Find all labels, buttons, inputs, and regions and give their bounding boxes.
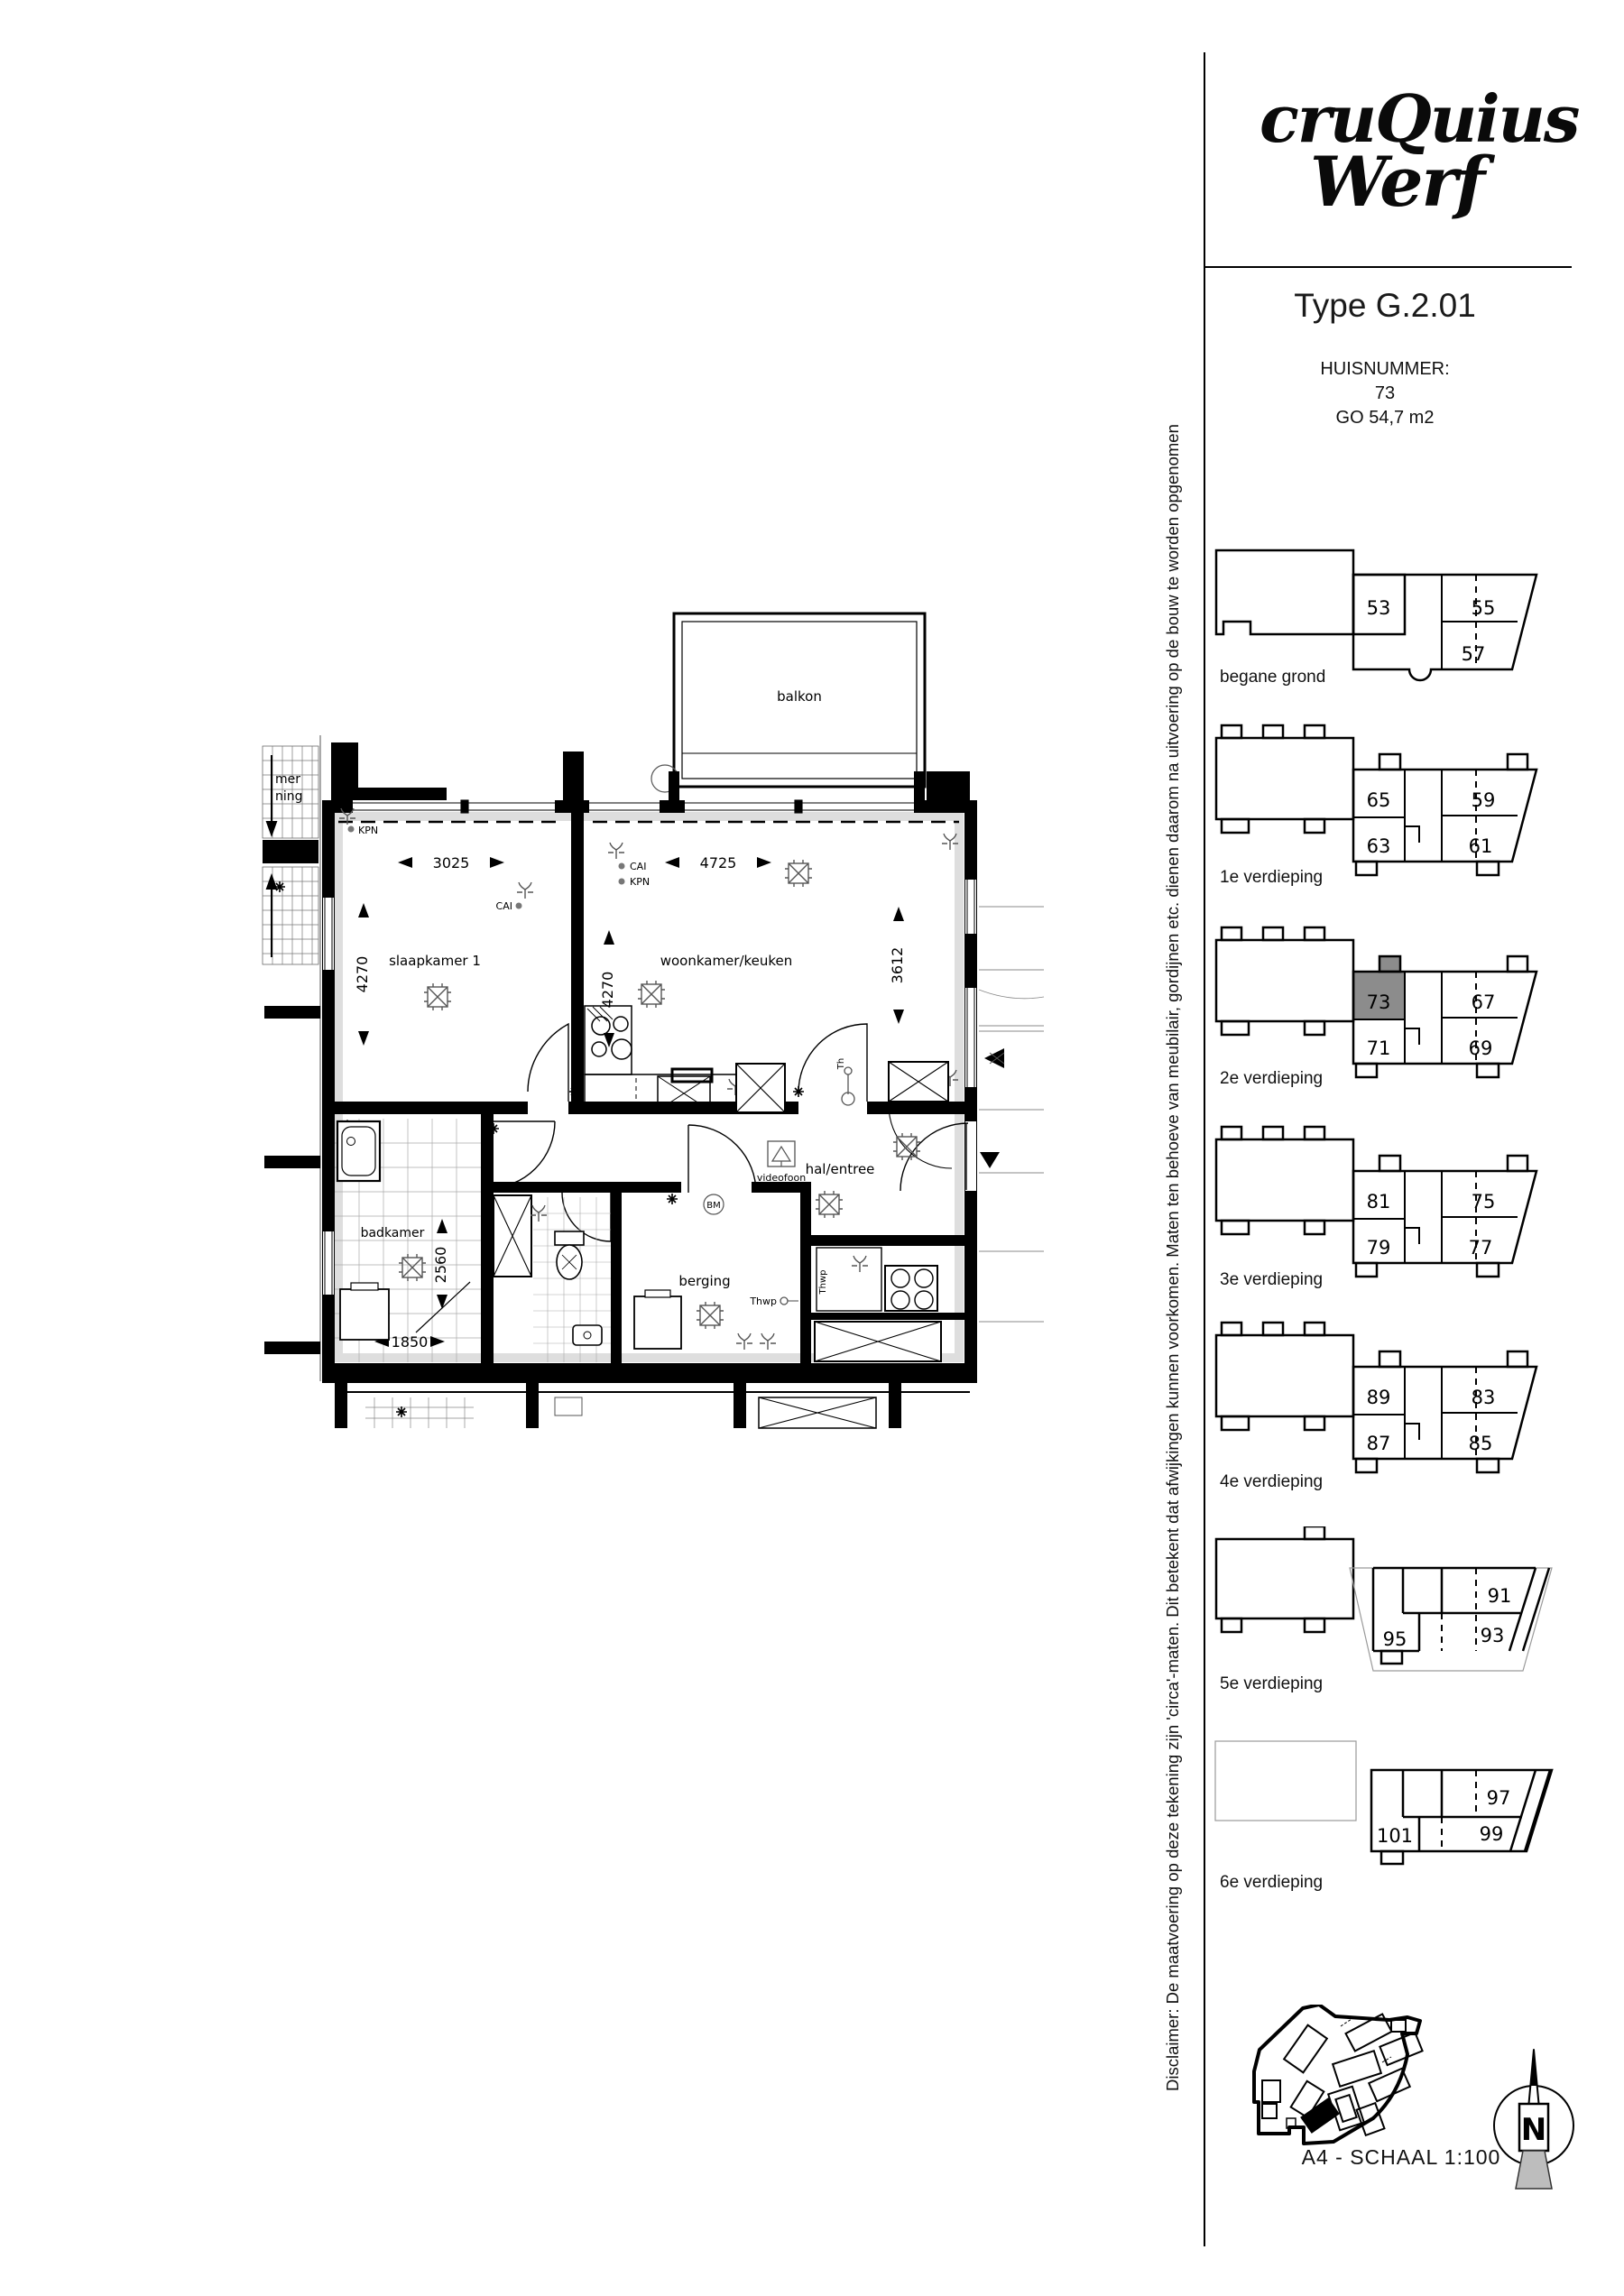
north-letter: N [1521, 2112, 1546, 2148]
hand-basin [573, 1325, 602, 1345]
interior-walls [328, 813, 970, 1363]
level-diagram-3e: 81 79 75 77 [1209, 1121, 1624, 1282]
logo-werf: Werf [1310, 148, 1483, 217]
unit-number: 69 [1469, 1037, 1493, 1059]
neighbor-label-cut: mer [275, 772, 300, 787]
svg-text:4270: 4270 [354, 956, 371, 993]
svg-text:CAI: CAI [630, 861, 646, 872]
shaft-bottom-right [815, 1322, 941, 1361]
unit-number: 77 [1469, 1237, 1493, 1259]
neighbor-wall-stub [264, 1342, 320, 1354]
svg-text:2560: 2560 [432, 1247, 449, 1284]
room-label-slaapkamer: slaapkamer 1 [389, 953, 481, 969]
unit-number: 81 [1367, 1191, 1391, 1213]
thermostat: Th [836, 1058, 854, 1105]
level-label: 1e verdieping [1220, 868, 1323, 888]
svg-text:BM: BM [706, 1201, 721, 1211]
unit-number: 95 [1383, 1628, 1407, 1650]
unit-number: 91 [1488, 1585, 1512, 1607]
room-label-badkamer: badkamer [361, 1226, 425, 1240]
entrance-arrow-down [980, 1152, 1000, 1168]
level-label: 2e verdieping [1220, 1069, 1323, 1089]
unit-number: 79 [1367, 1237, 1391, 1259]
videofoon: videofoon [757, 1141, 806, 1184]
highlighted-unit-balcony [1379, 956, 1400, 972]
unit-number: 83 [1472, 1387, 1496, 1408]
unit-number: 67 [1472, 991, 1496, 1013]
toilet [555, 1231, 584, 1279]
go-area-value: GO 54,7 m2 [1204, 408, 1565, 429]
room-label-berging: berging [678, 1273, 730, 1289]
level-diagram-2e-current: 73 71 67 69 [1209, 922, 1624, 1083]
unit-number: 93 [1481, 1625, 1505, 1646]
titleblock-divider-line [1204, 266, 1572, 268]
dim-4270-slaapkamer: 4270 [354, 903, 371, 1046]
svg-text:4725: 4725 [700, 854, 737, 871]
dim-4270-woonkamer: 4270 [599, 930, 616, 1047]
dim-3025: 3025 [398, 854, 504, 871]
thwp-unit-label: Thwp [818, 1270, 828, 1296]
svg-text:Thwp: Thwp [749, 1296, 777, 1307]
floor-plan: mer ning balkon [257, 600, 1051, 1439]
level-label: 5e verdieping [1220, 1674, 1323, 1694]
level-diagram-4e: 89 87 83 85 [1209, 1317, 1624, 1478]
svg-text:videofoon: videofoon [757, 1172, 806, 1184]
cai-kpn-outlets-woonkamer: CAI KPN [608, 843, 650, 888]
unit-number: 65 [1367, 789, 1391, 811]
lower-floor-fragment [335, 1383, 970, 1428]
unit-number: 59 [1472, 789, 1496, 811]
unit-number: 101 [1377, 1825, 1413, 1847]
room-label-hal: hal/entree [806, 1161, 875, 1177]
unit-number: 63 [1367, 835, 1391, 857]
svg-text:KPN: KPN [630, 876, 650, 888]
gallery-lines [979, 907, 1044, 1322]
party-wall-stub [563, 752, 584, 800]
svg-text:1850: 1850 [392, 1333, 429, 1351]
washing-machine [340, 1283, 389, 1340]
unit-number: 99 [1480, 1823, 1504, 1845]
svg-text:Th: Th [836, 1058, 846, 1070]
shower-slope-line [416, 1282, 470, 1332]
drawing-sheet: { "header": { "logo_line1": "cruQuius", … [0, 0, 1624, 2296]
bathtub [337, 1121, 380, 1181]
balkon-structure [651, 613, 925, 804]
unit-number: 57 [1462, 643, 1486, 665]
cai-outlet-slaapkamer: CAI [496, 882, 533, 912]
unit-number: 87 [1367, 1433, 1391, 1454]
huisnummer-label: HUISNUMMER: [1204, 359, 1565, 380]
svg-text:CAI: CAI [496, 900, 512, 912]
level-label: 3e verdieping [1220, 1270, 1323, 1290]
huisnummer-value: 73 [1204, 383, 1565, 404]
facade-windows [351, 800, 916, 813]
technical-closet [817, 1248, 937, 1311]
svg-text:KPN: KPN [358, 825, 378, 836]
room-label-balkon: balkon [777, 688, 822, 705]
unit-number: 55 [1472, 597, 1496, 619]
bm-symbol: BM [704, 1194, 724, 1214]
unit-number: 75 [1472, 1191, 1496, 1213]
neighbor-wall-stub [264, 1006, 320, 1019]
sidebar-divider-line [1204, 52, 1205, 2246]
door-arcs [488, 1024, 968, 1241]
svg-text:3025: 3025 [433, 854, 470, 871]
meterkast [889, 1062, 948, 1103]
corner-column [927, 771, 970, 800]
unit-number: 61 [1469, 835, 1493, 857]
unit-number: 71 [1367, 1037, 1391, 1059]
thwp-connection: Thwp [749, 1296, 798, 1307]
svg-text:3612: 3612 [889, 947, 906, 984]
unit-number-current: 73 [1367, 991, 1391, 1013]
dryer-unit [634, 1290, 681, 1349]
dim-2560: 2560 [432, 1219, 449, 1309]
room-label-woonkamer: woonkamer/keuken [660, 953, 793, 969]
dim-4725: 4725 [665, 854, 771, 871]
disclaimer-text: Disclaimer: De maatvoering op deze teken… [1163, 424, 1183, 2091]
level-label: 4e verdieping [1220, 1472, 1323, 1492]
unit-number: 85 [1469, 1433, 1493, 1454]
unit-number: 53 [1367, 597, 1391, 619]
dim-3612: 3612 [889, 907, 906, 1024]
type-title: Type G.2.01 [1204, 287, 1565, 325]
unit-number: 97 [1487, 1787, 1511, 1809]
north-arrow: N [1484, 2046, 1583, 2195]
level-diagram-begane-grond: 53 55 57 [1209, 528, 1624, 688]
level-diagram-1e: 65 63 59 61 [1209, 720, 1624, 881]
shaft-kitchen [736, 1064, 785, 1112]
svg-text:4270: 4270 [599, 972, 616, 1009]
site-map [1247, 2005, 1445, 2158]
kitchen-block [585, 1006, 736, 1112]
neighbor-landing-wall [263, 840, 318, 863]
unit-number: 89 [1367, 1387, 1391, 1408]
level-label: 6e verdieping [1220, 1873, 1323, 1893]
level-label: begane grond [1220, 668, 1325, 687]
neighbor-label-cut: ning [275, 789, 303, 804]
party-wall-top [331, 788, 447, 800]
shaft-left [494, 1195, 531, 1277]
entrance-arrow-left [984, 1048, 1004, 1068]
neighbor-wall-stub [264, 1156, 320, 1168]
level-diagram-5e: 95 91 93 [1209, 1526, 1624, 1687]
